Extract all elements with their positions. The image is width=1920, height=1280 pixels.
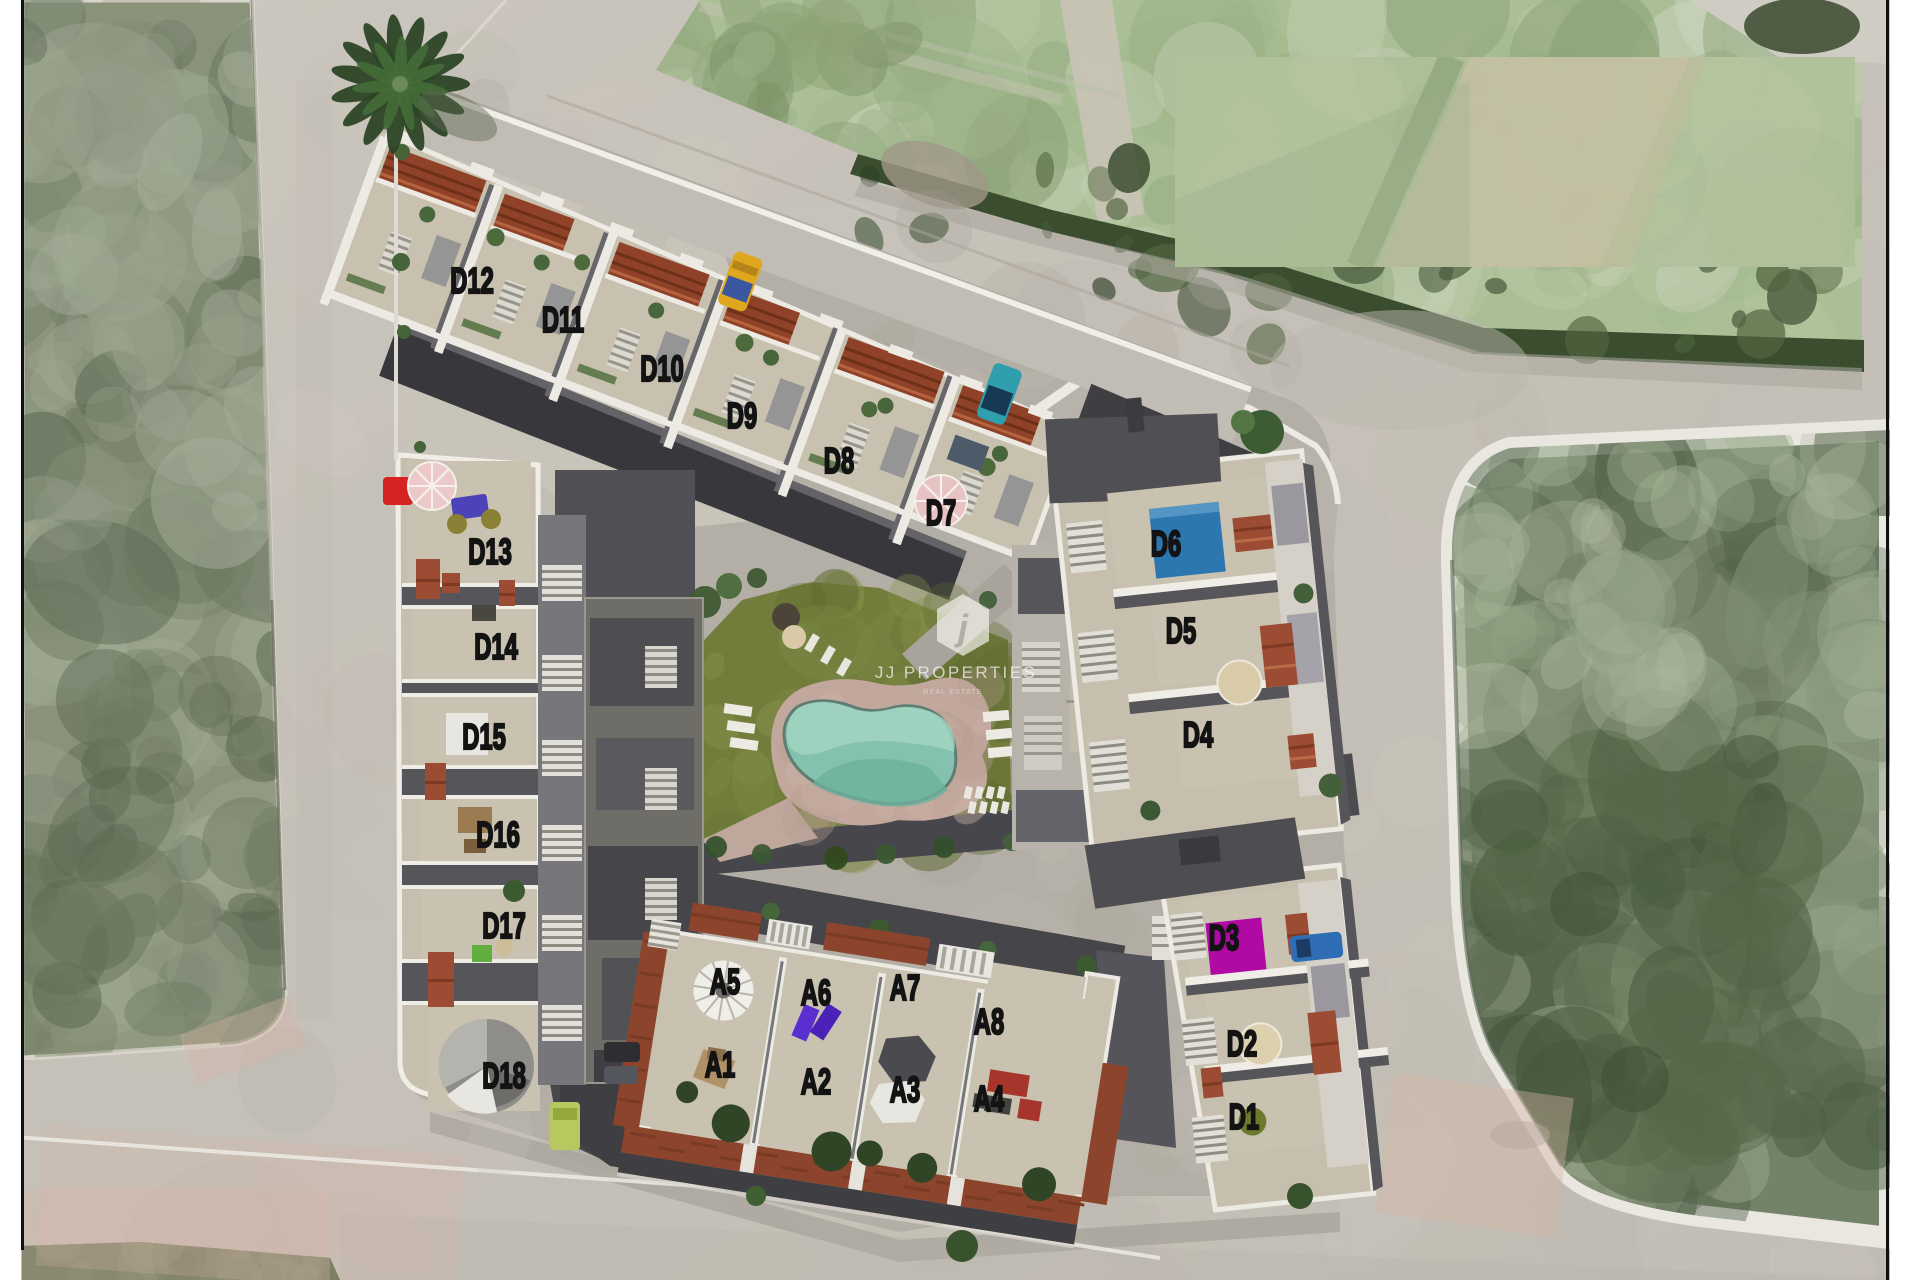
svg-text:D9: D9 bbox=[727, 396, 757, 436]
svg-text:D15: D15 bbox=[462, 717, 506, 757]
svg-text:A8: A8 bbox=[974, 1002, 1004, 1042]
svg-text:D18: D18 bbox=[482, 1056, 526, 1096]
svg-text:JJ PROPERTIES: JJ PROPERTIES bbox=[875, 663, 1037, 682]
svg-text:D6: D6 bbox=[1151, 524, 1181, 564]
svg-text:D17: D17 bbox=[482, 906, 526, 946]
svg-text:D1: D1 bbox=[1229, 1097, 1259, 1137]
svg-text:D7: D7 bbox=[926, 493, 956, 533]
svg-text:REAL ESTATE: REAL ESTATE bbox=[923, 689, 982, 696]
svg-text:D3: D3 bbox=[1209, 918, 1239, 958]
svg-text:A3: A3 bbox=[890, 1070, 920, 1110]
svg-text:D12: D12 bbox=[450, 261, 494, 301]
svg-text:A5: A5 bbox=[710, 962, 740, 1002]
svg-text:A2: A2 bbox=[801, 1062, 831, 1102]
svg-text:D10: D10 bbox=[640, 349, 684, 389]
svg-text:D8: D8 bbox=[824, 441, 854, 481]
svg-text:D11: D11 bbox=[542, 300, 584, 340]
svg-text:A7: A7 bbox=[890, 968, 920, 1008]
svg-text:A6: A6 bbox=[801, 973, 831, 1013]
svg-text:D13: D13 bbox=[468, 532, 512, 572]
svg-text:D5: D5 bbox=[1166, 611, 1196, 651]
svg-text:A4: A4 bbox=[974, 1079, 1004, 1119]
svg-text:D16: D16 bbox=[476, 815, 520, 855]
svg-text:D2: D2 bbox=[1227, 1024, 1257, 1064]
svg-text:D4: D4 bbox=[1183, 715, 1213, 755]
svg-text:A1: A1 bbox=[705, 1045, 735, 1085]
svg-text:D14: D14 bbox=[474, 627, 518, 667]
